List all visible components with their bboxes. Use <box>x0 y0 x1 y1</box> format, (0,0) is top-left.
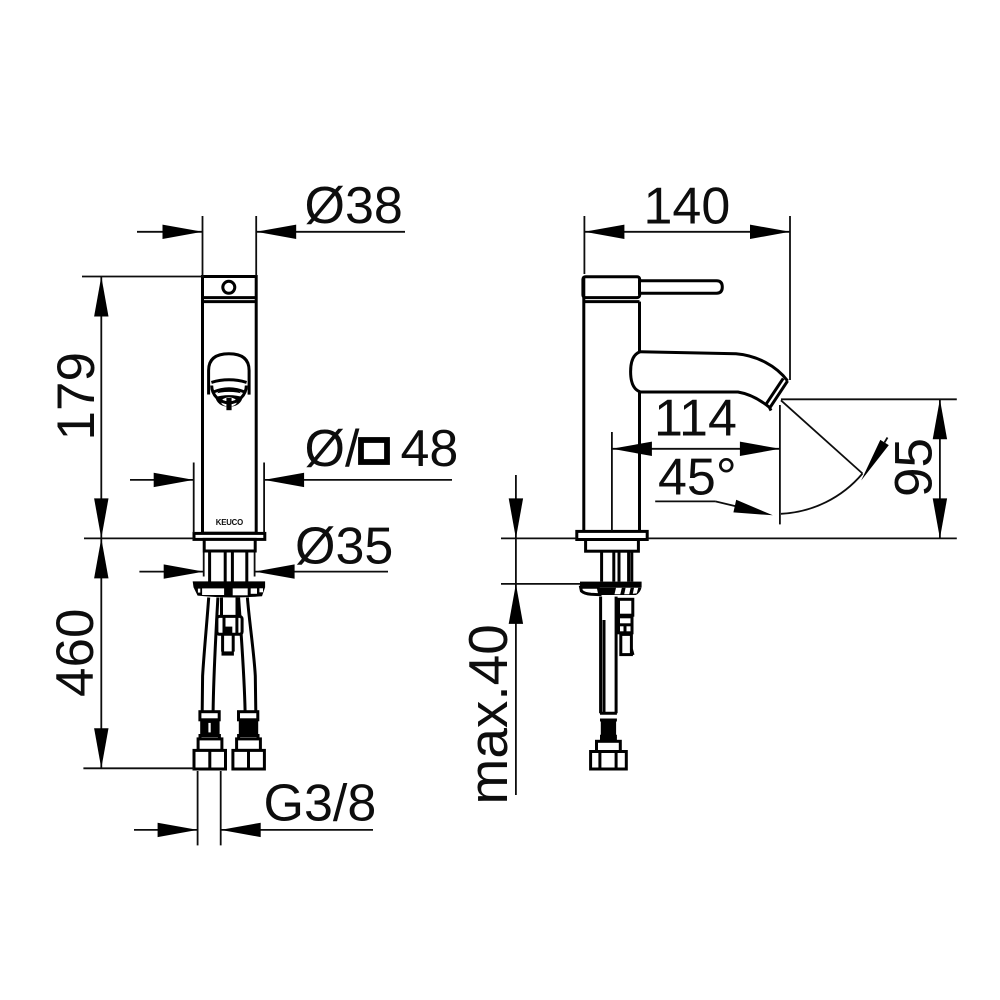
svg-text:95: 95 <box>885 438 944 497</box>
svg-text:48: 48 <box>401 420 459 478</box>
svg-text:Ø35: Ø35 <box>295 517 393 575</box>
svg-text:179: 179 <box>47 352 106 440</box>
svg-text:Ø38: Ø38 <box>305 177 403 235</box>
svg-text:45°: 45° <box>658 449 737 507</box>
svg-text:Ø/: Ø/ <box>305 420 360 478</box>
svg-text:KEUCO: KEUCO <box>216 518 243 527</box>
svg-text:max.40: max.40 <box>457 624 519 804</box>
svg-text:114: 114 <box>654 389 737 447</box>
svg-text:G3/8: G3/8 <box>264 774 377 832</box>
svg-text:140: 140 <box>644 177 731 235</box>
svg-text:460: 460 <box>46 609 105 697</box>
